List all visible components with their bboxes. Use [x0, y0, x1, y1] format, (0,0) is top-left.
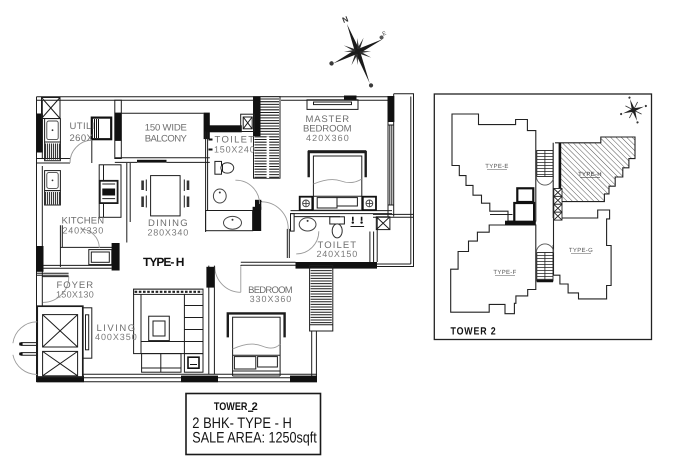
svg-text:150X130: 150X130: [56, 290, 94, 300]
svg-text:240X330: 240X330: [63, 226, 104, 236]
svg-text:UTILI: UTILI: [70, 121, 95, 132]
svg-text:TOWER 2: TOWER 2: [451, 326, 497, 338]
svg-text:TOWER: TOWER: [214, 401, 248, 413]
svg-text:330X360: 330X360: [250, 294, 292, 304]
svg-text:2: 2: [252, 401, 258, 413]
svg-text:BALCONY: BALCONY: [145, 134, 188, 145]
svg-text:TYPE- H: TYPE- H: [143, 255, 185, 269]
svg-text:280X340: 280X340: [148, 228, 189, 238]
svg-text:400X350: 400X350: [95, 332, 137, 342]
svg-text:SALE AREA: 1250sqft: SALE AREA: 1250sqft: [192, 429, 317, 446]
svg-text:150X240: 150X240: [214, 145, 255, 155]
svg-text:420X360: 420X360: [306, 133, 349, 143]
svg-text:150 WIDE: 150 WIDE: [145, 123, 188, 134]
svg-text:260X: 260X: [70, 133, 94, 144]
svg-text:240X150: 240X150: [317, 249, 358, 259]
